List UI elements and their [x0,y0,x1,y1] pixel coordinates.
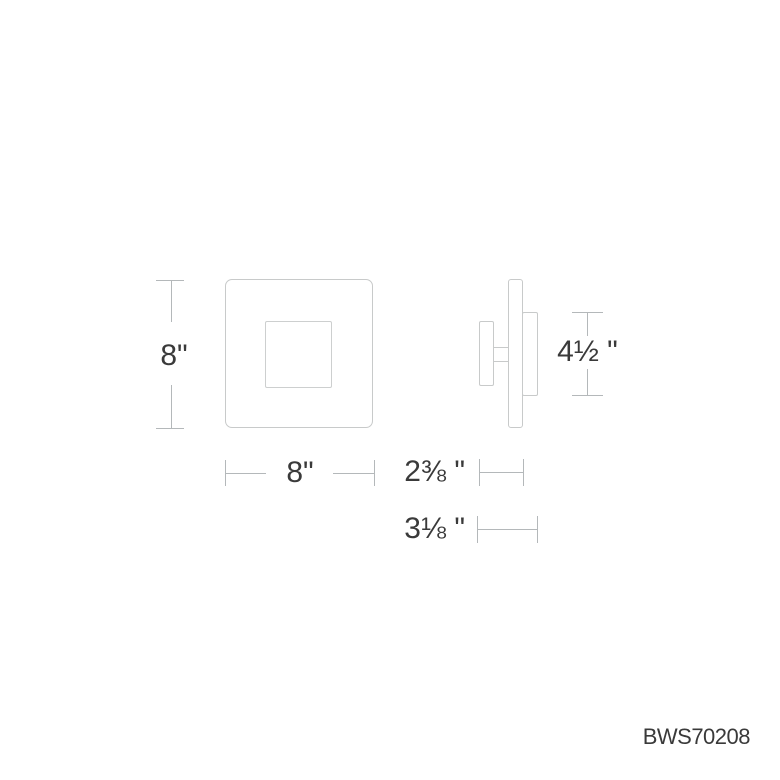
front-view-inner-panel [265,321,332,388]
product-code: BWS70208 [580,726,750,748]
width-dim-line-left [225,473,266,474]
height-dim-label: 8" [144,341,204,371]
height-dim-tick-bottom [156,428,184,429]
side-view-main-plate [508,279,523,428]
width-dim-label: 8" [270,458,330,488]
width-dim-tick-right [374,460,375,486]
depth-body-dim-line [479,472,524,473]
product-dimension-diagram: 8" 8" 4½ " 2⅜ " 3⅛ " BWS70208 [0,0,780,780]
side-view-front-plate [479,321,494,386]
height-dim-line-upper [171,280,172,322]
height-dim-line-lower [171,385,172,428]
depth-overall-dim-line [477,529,538,530]
depth-overall-dim-label: 3⅛ " [385,514,465,544]
height-dim-tick-top [156,280,184,281]
depth-overall-dim-tick-right [537,516,538,543]
side-height-dim-line-upper [587,312,588,336]
side-view-back-box [522,312,538,396]
side-height-dim-tick-bottom [572,395,603,396]
depth-body-dim-label: 2⅜ " [385,457,465,487]
depth-body-dim-tick-right [523,459,524,486]
side-height-dim-line-lower [587,369,588,395]
width-dim-line-right [333,473,375,474]
side-height-dim-label: 4½ " [545,337,630,367]
side-view-connector-arm [493,347,509,362]
